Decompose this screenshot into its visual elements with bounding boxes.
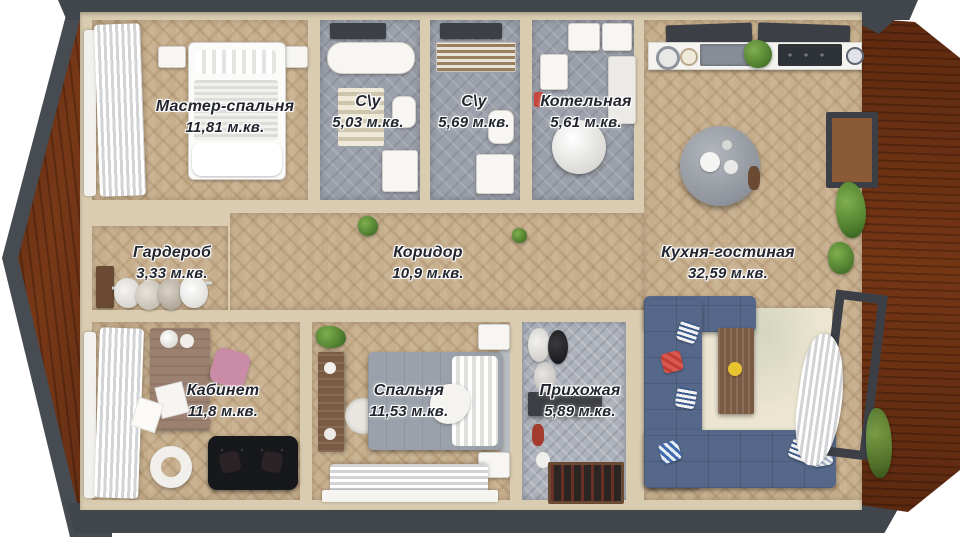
cooktop bbox=[778, 44, 842, 66]
bedroom-window-sill bbox=[322, 490, 498, 502]
bed-throw bbox=[192, 142, 282, 176]
right-window-upper bbox=[826, 112, 878, 188]
plate bbox=[656, 46, 680, 70]
dining-table bbox=[680, 126, 760, 206]
master-bedroom-curtain bbox=[94, 23, 146, 197]
corridor-plant bbox=[358, 216, 378, 236]
sofa-pillow bbox=[674, 386, 697, 409]
hall-vase bbox=[532, 424, 544, 446]
dresser-decor bbox=[324, 362, 336, 374]
doormat bbox=[548, 462, 624, 504]
boiler-tank bbox=[552, 120, 606, 174]
room-corridor bbox=[230, 213, 644, 310]
floor-plan: Мастер-спальня 11,81 м.кв. С\у 5,03 м.кв… bbox=[0, 0, 960, 537]
sofa-pillow-dark bbox=[218, 450, 242, 474]
deck-plant bbox=[828, 242, 854, 274]
table-plate bbox=[724, 160, 738, 174]
bathroom2-sink bbox=[476, 154, 514, 194]
table-cup bbox=[722, 140, 732, 150]
sofa-pillow-dark bbox=[260, 450, 283, 473]
dresser-decor bbox=[324, 428, 336, 440]
corridor-plant bbox=[512, 228, 527, 243]
coat-dark bbox=[548, 330, 568, 364]
bathroom2-window bbox=[440, 23, 502, 39]
washer bbox=[568, 23, 600, 51]
table-plate bbox=[700, 152, 720, 172]
shelving bbox=[608, 56, 636, 124]
bedroom-plant bbox=[316, 326, 346, 348]
desk-lamp bbox=[160, 330, 178, 348]
coat-white bbox=[534, 362, 556, 392]
nightstand bbox=[158, 46, 186, 68]
nightstand bbox=[478, 324, 510, 350]
plate bbox=[846, 47, 864, 65]
appliance bbox=[602, 23, 632, 51]
toilet bbox=[488, 110, 514, 144]
hall-console bbox=[528, 392, 602, 416]
bed-blanket bbox=[194, 80, 278, 140]
bathtub bbox=[327, 42, 415, 74]
table-decor-yellow bbox=[728, 362, 742, 376]
floor-lamp bbox=[150, 446, 192, 488]
coat-white bbox=[528, 328, 550, 362]
bath-mat bbox=[338, 88, 384, 146]
plate bbox=[680, 48, 698, 66]
nightstand bbox=[284, 46, 308, 68]
bathroom1-sink bbox=[382, 150, 418, 192]
bathroom1-window bbox=[330, 23, 386, 39]
counter-plant bbox=[744, 40, 772, 68]
wall-unit-red bbox=[534, 92, 543, 107]
bed-pillows bbox=[196, 50, 276, 74]
toilet bbox=[392, 96, 416, 128]
hanging-clothes bbox=[180, 276, 208, 308]
desk-decor bbox=[180, 334, 194, 348]
table-vase bbox=[748, 166, 760, 190]
shower bbox=[436, 42, 516, 72]
utility-sink bbox=[540, 54, 568, 90]
